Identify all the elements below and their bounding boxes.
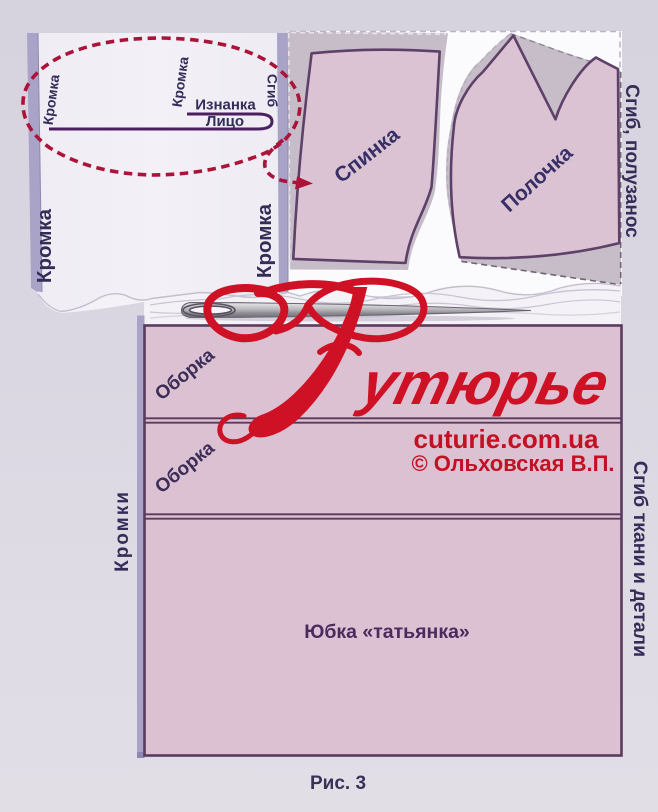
svg-text:cuturie.com.ua: cuturie.com.ua <box>414 424 599 454</box>
svg-text:Рис. 3: Рис. 3 <box>310 773 366 794</box>
svg-text:Кромка: Кромка <box>33 208 56 283</box>
svg-text:Кромки: Кромки <box>112 490 133 572</box>
svg-text:© Ольховская В.П.: © Ольховская В.П. <box>411 451 614 476</box>
svg-text:Кромка: Кромка <box>253 203 276 278</box>
svg-text:Сгиб, полузанос: Сгиб, полузанос <box>621 84 642 238</box>
svg-text:Лицо: Лицо <box>206 113 244 130</box>
svg-text:Изнанка: Изнанка <box>195 97 256 114</box>
svg-text:Сгиб: Сгиб <box>265 74 281 108</box>
svg-text:утюрье: утюрье <box>352 350 616 417</box>
svg-text:Юбка «татьянка»: Юбка «татьянка» <box>304 621 470 643</box>
svg-text:Сгиб ткани и детали: Сгиб ткани и детали <box>629 461 651 657</box>
